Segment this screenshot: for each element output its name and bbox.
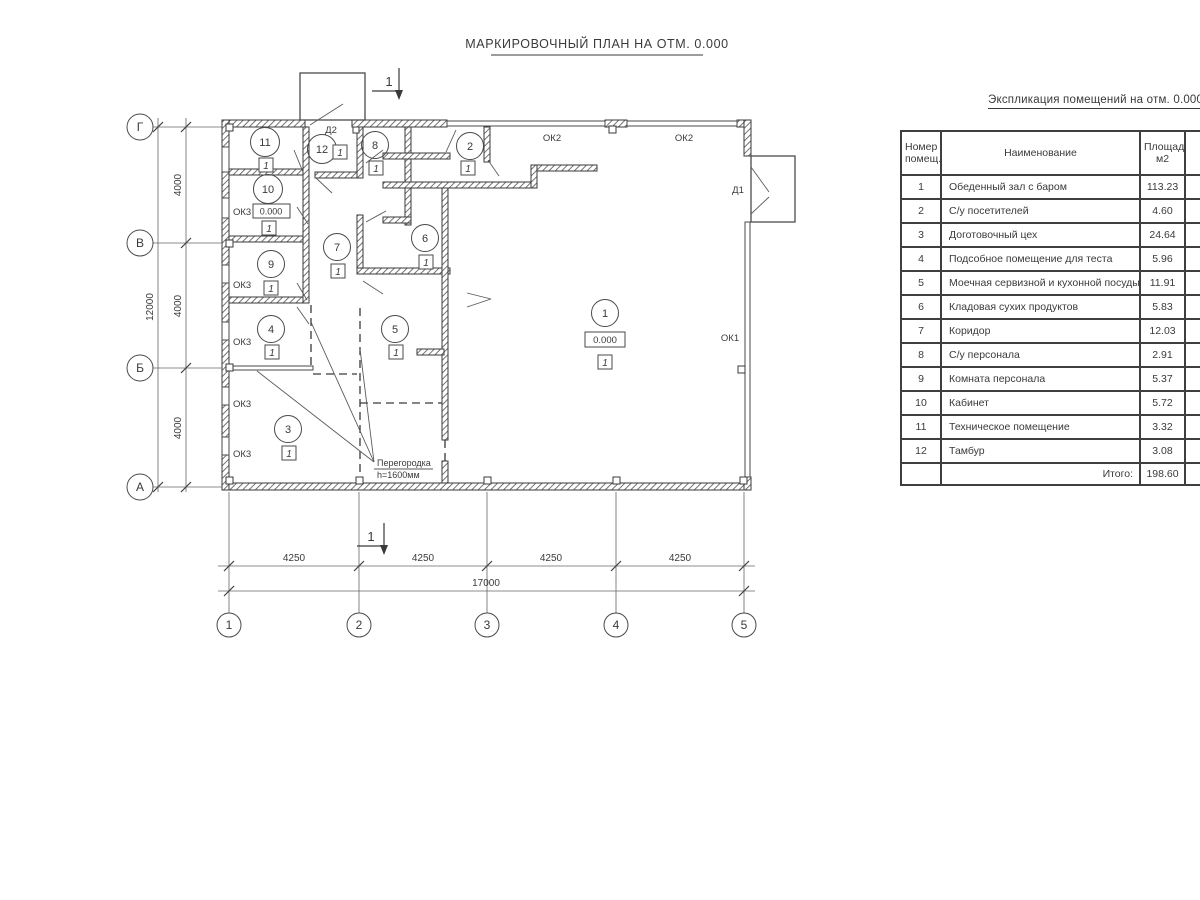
axis-col-1: 1 [226,618,233,632]
label-ok3-4: ОК3 [233,399,251,410]
axis-col-3: 3 [484,618,491,632]
axis-row-g: Г [137,120,144,134]
room-number-12: 12 [316,144,328,156]
label-ok2-left: ОК2 [543,133,561,144]
table-row: 12Тамбур3.08 [901,439,1200,463]
axis-row-b: Б [136,361,144,375]
opening-labels: Д2 Д1 ОК2 ОК2 ОК1 ОК3 ОК3 ОК3 ОК3 ОК3 [233,125,744,460]
dimension-ticks [153,122,749,596]
section-mark-bottom: 1 [357,523,388,555]
table-row: 5Моечная сервизной и кухонной посуды11.9… [901,271,1200,295]
dim-row-2: 4000 [173,294,184,317]
svg-text:Перегородка: Перегородка [377,458,431,468]
axis-col-5: 5 [741,618,748,632]
label-d2: Д2 [325,125,337,136]
level-mark-room1: 0.000 [593,335,617,346]
svg-text:1: 1 [263,161,269,172]
dim-row-3: 4000 [173,416,184,439]
label-ok3-3: ОК3 [233,337,251,348]
col-header-area: Площадь,м2 [1140,131,1185,175]
dim-total-height: 12000 [145,293,156,321]
table-row: 9Комната персонала5.37 [901,367,1200,391]
window-ok3-1 [222,147,229,172]
drawing-title: МАРКИРОВОЧНЫЙ ПЛАН НА ОТМ. 0.000 [465,36,728,51]
table-row: 11Техническое помещение3.32 [901,415,1200,439]
table-row: 6Кладовая сухих продуктов5.83 [901,295,1200,319]
svg-text:1: 1 [268,284,274,295]
dim-bay-4: 4250 [669,553,692,564]
room-number-11: 11 [259,137,270,149]
label-ok3-5: ОК3 [233,449,251,460]
table-row: 10Кабинет5.72 [901,391,1200,415]
col-header-category: Капо [1185,131,1200,175]
dim-bay-1: 4250 [283,553,306,564]
window-ok2-left [447,121,605,126]
porch-right [751,156,795,222]
thin-partition [229,366,313,370]
room-number-10: 10 [262,184,274,196]
svg-text:1: 1 [367,529,374,544]
svg-text:1: 1 [269,348,275,359]
porch-top [300,73,365,120]
total-label: Итого: [941,463,1140,485]
col-header-number: Номерпомещ. [901,131,941,175]
room-number-9: 9 [268,259,274,271]
svg-text:1: 1 [602,358,608,369]
floor-type-marks: 1 1 1 1 1 1 1 1 1 1 1 1 [259,145,612,460]
dim-bay-3: 4250 [540,553,563,564]
level-mark-room10: 0.000 [260,207,283,217]
window-ok2-right [627,121,737,126]
table-row: 2С/у посетителей4.60 [901,199,1200,223]
label-ok2-right: ОК2 [675,133,693,144]
explication-table: Номерпомещ. Наименование Площадь,м2 Капо… [900,130,1200,486]
label-d1: Д1 [732,185,744,196]
svg-text:1: 1 [385,74,392,89]
axis-row-a: А [136,480,144,494]
room-number-4: 4 [268,324,274,336]
room-number-2: 2 [467,141,473,153]
svg-text:1: 1 [465,164,471,175]
svg-text:1: 1 [335,267,341,278]
table-row: 1Обеденный зал с баром113.23 [901,175,1200,199]
room-number-5: 5 [392,324,398,336]
window-ok3-6 [222,437,229,455]
low-partitions-dashed [311,305,445,477]
table-row: 8С/у персонала2.91 [901,343,1200,367]
svg-text:1: 1 [337,148,343,159]
table-row: 4Подсобное помещение для теста5.96 [901,247,1200,271]
label-ok3-2: ОК3 [233,280,251,291]
section-mark-top: 1 [372,68,403,100]
svg-text:1: 1 [393,348,399,359]
room-number-7: 7 [334,242,340,254]
svg-text:1: 1 [423,258,429,269]
svg-text:1: 1 [266,224,272,235]
window-ok3-2 [222,198,229,218]
axis-col-2: 2 [356,618,363,632]
axis-col-4: 4 [613,618,620,632]
explication-table-container: Номерпомещ. Наименование Площадь,м2 Капо… [900,130,1200,486]
col-header-name: Наименование [941,131,1140,175]
window-ok3-4 [222,322,229,340]
table-row: 7Коридор12.03 [901,319,1200,343]
room-number-3: 3 [285,424,291,436]
svg-text:h=1600мм: h=1600мм [377,470,420,480]
label-ok1: ОК1 [721,333,739,344]
window-ok1 [745,222,750,477]
table-header-row: Номерпомещ. Наименование Площадь,м2 Капо [901,131,1200,175]
dim-total-width: 17000 [472,578,500,589]
axis-row-v: В [136,236,144,250]
total-value: 198.60 [1140,463,1185,485]
table-total-row: Итого: 198.60 [901,463,1200,485]
label-ok3-1: ОК3 [233,207,251,218]
room-number-1: 1 [602,308,608,320]
room-number-6: 6 [422,233,428,245]
room-number-8: 8 [372,140,378,152]
svg-text:1: 1 [286,449,292,460]
explication-title: Экспликация помещений на отм. 0.000 [988,94,1200,109]
dim-row-1: 4000 [173,173,184,196]
table-row: 3Доготовочный цех24.64 [901,223,1200,247]
window-ok3-5 [222,387,229,405]
dim-bay-2: 4250 [412,553,435,564]
svg-text:1: 1 [373,164,379,175]
window-ok3-3 [222,265,229,283]
